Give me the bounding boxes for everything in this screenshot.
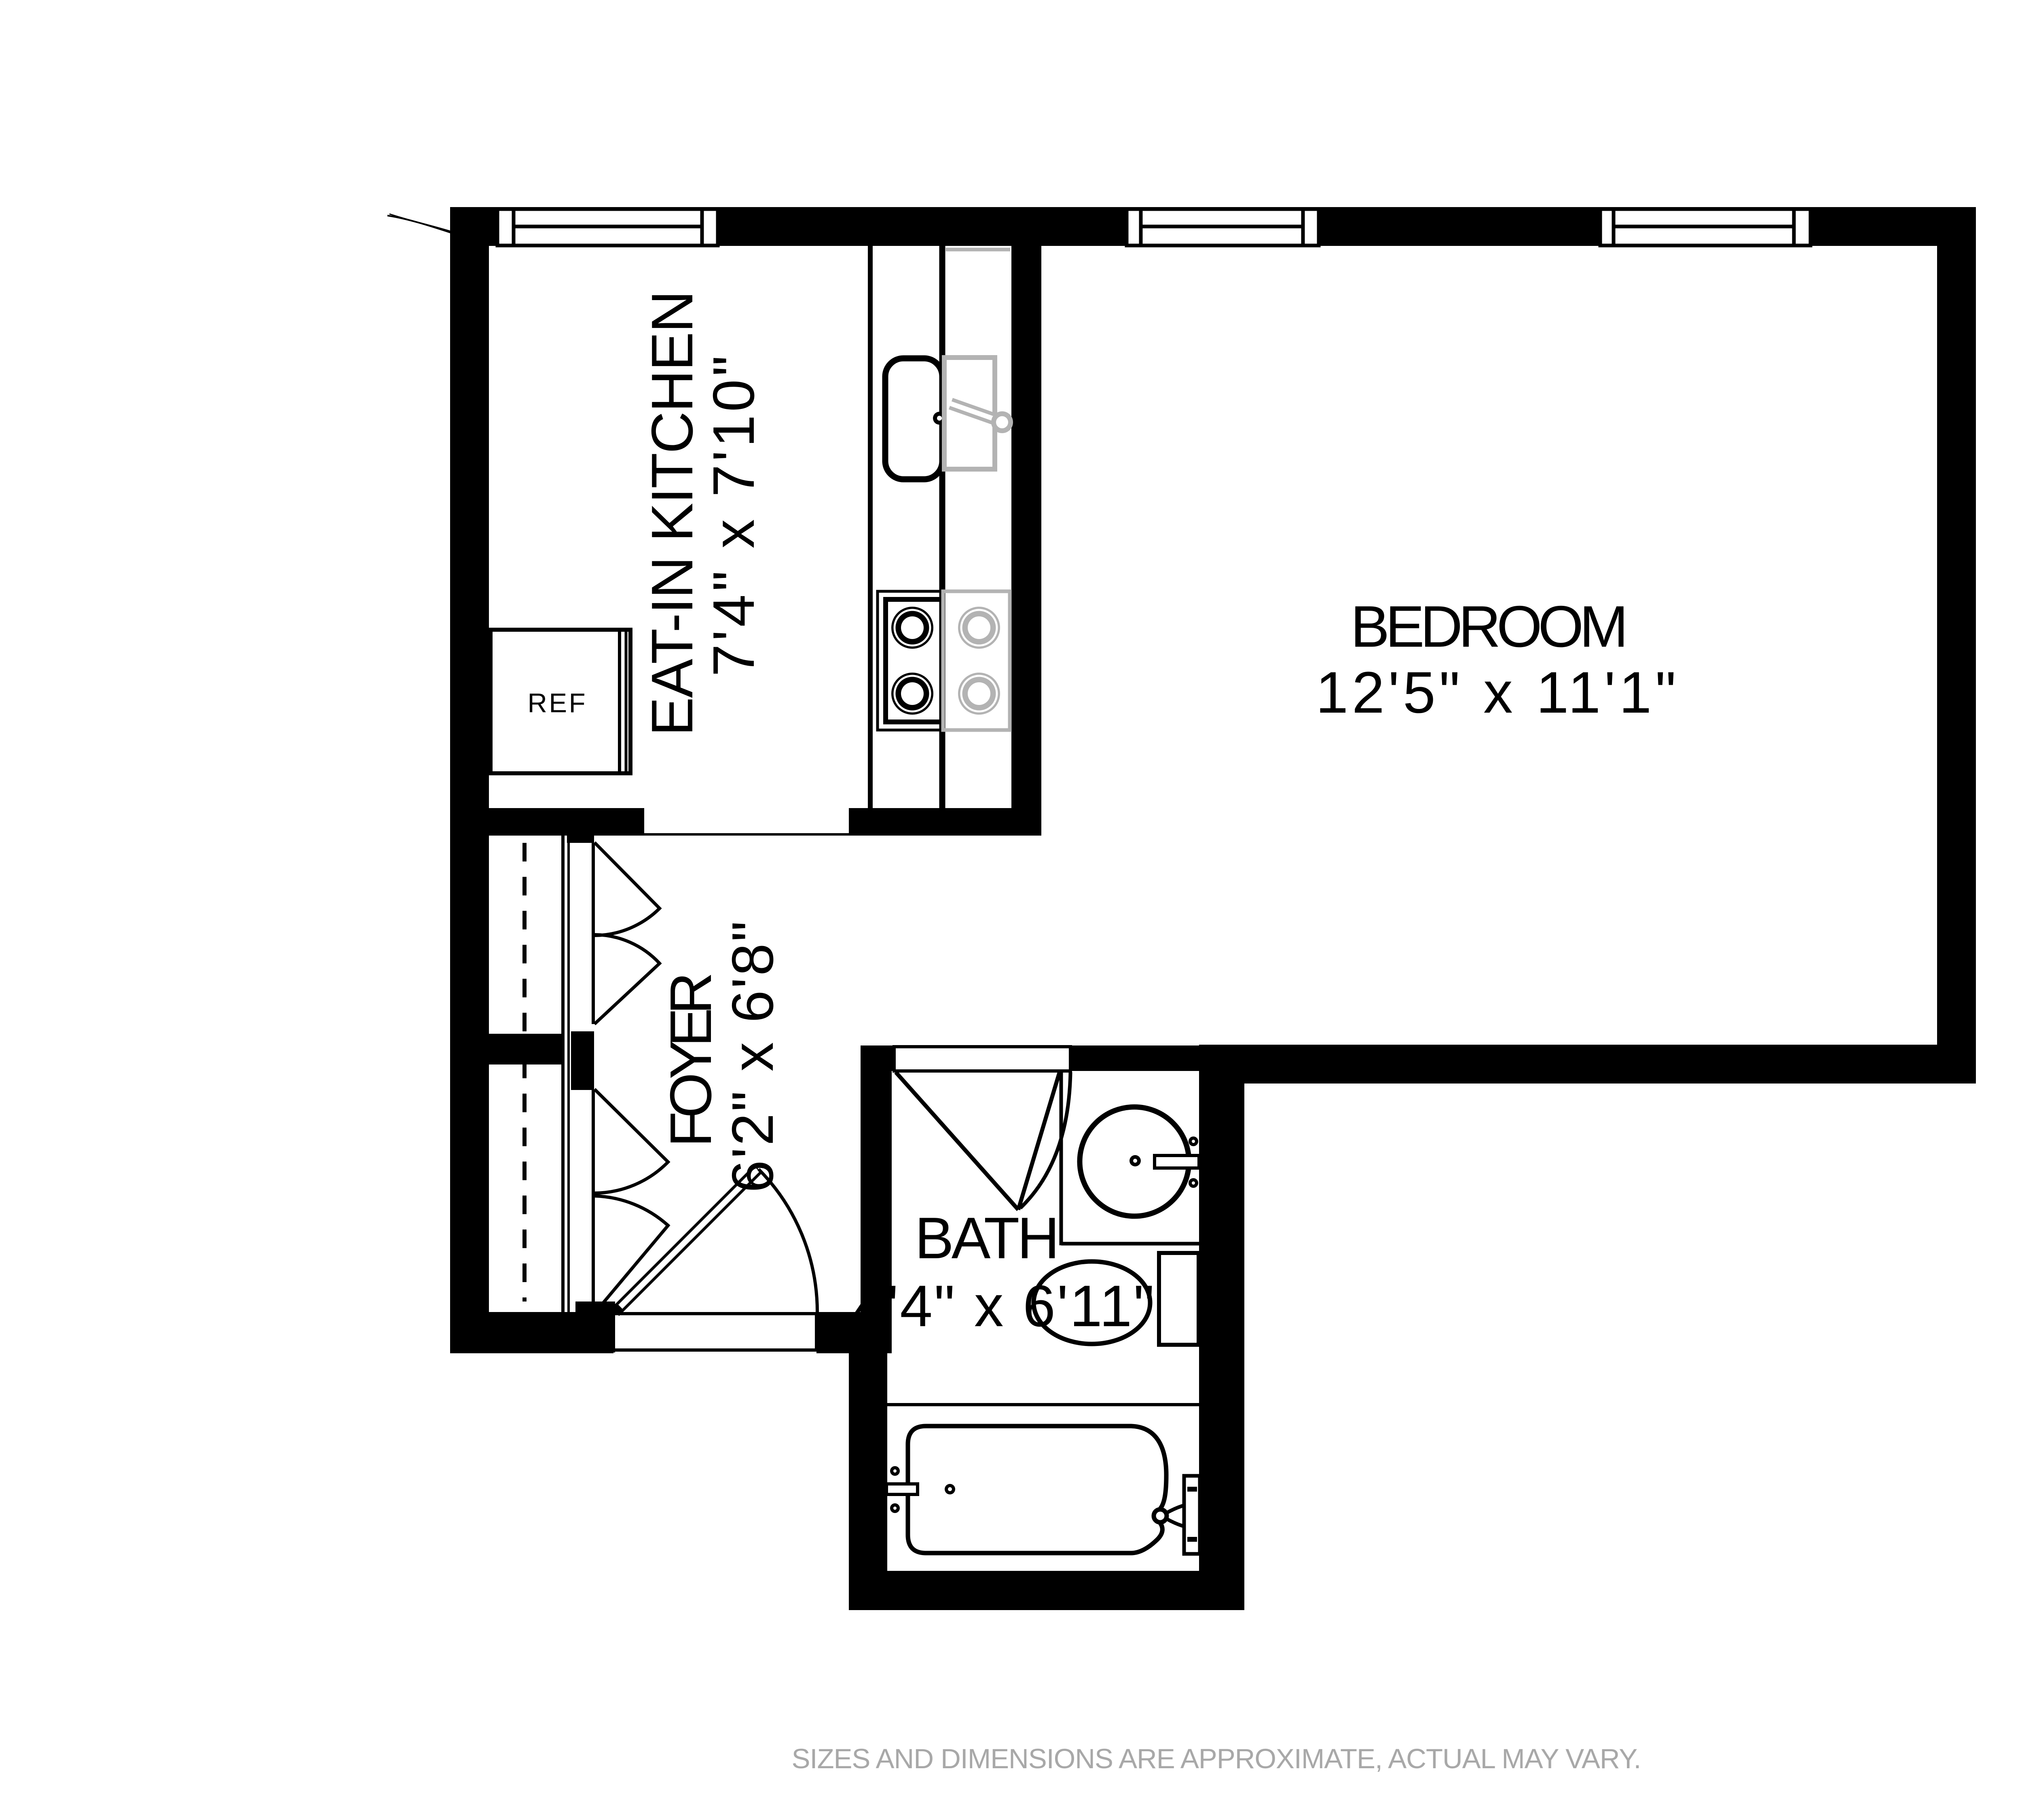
svg-text:EAT-IN KITCHEN: EAT-IN KITCHEN [639, 290, 705, 736]
svg-text:6'2" x 6'8": 6'2" x 6'8" [720, 921, 785, 1193]
svg-text:SIZES AND DIMENSIONS ARE APPRO: SIZES AND DIMENSIONS ARE APPROXIMATE, AC… [792, 1743, 1641, 1774]
svg-text:FOYER: FOYER [658, 972, 723, 1147]
svg-text:12'5" x 11'1": 12'5" x 11'1" [1316, 660, 1676, 725]
svg-text:BATH: BATH [915, 1205, 1060, 1271]
svg-text:BEDROOM: BEDROOM [1351, 594, 1629, 659]
svg-text:REF: REF [528, 688, 586, 718]
